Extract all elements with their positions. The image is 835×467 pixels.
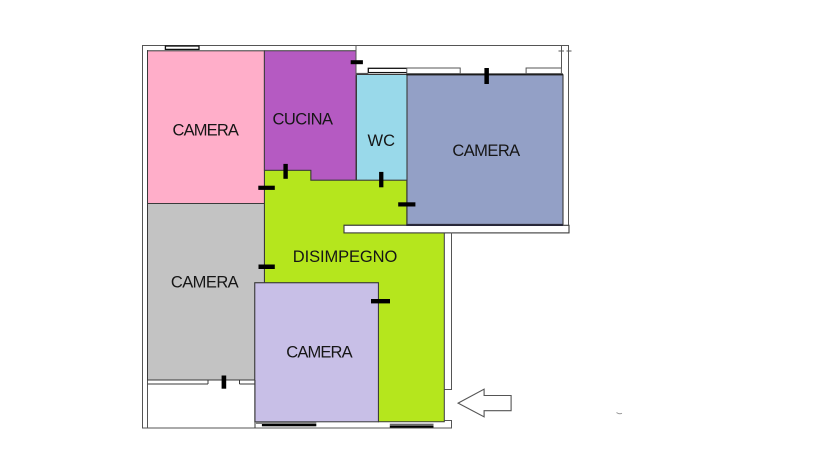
svg-text:CAMERA: CAMERA	[452, 142, 520, 160]
svg-text:CAMERA: CAMERA	[286, 344, 352, 362]
svg-text:CAMERA: CAMERA	[173, 122, 239, 140]
svg-text:DISIMPEGNO: DISIMPEGNO	[293, 248, 398, 266]
svg-text:WC: WC	[368, 132, 396, 150]
svg-text:CAMERA: CAMERA	[171, 274, 239, 292]
svg-text:CUCINA: CUCINA	[273, 111, 333, 129]
